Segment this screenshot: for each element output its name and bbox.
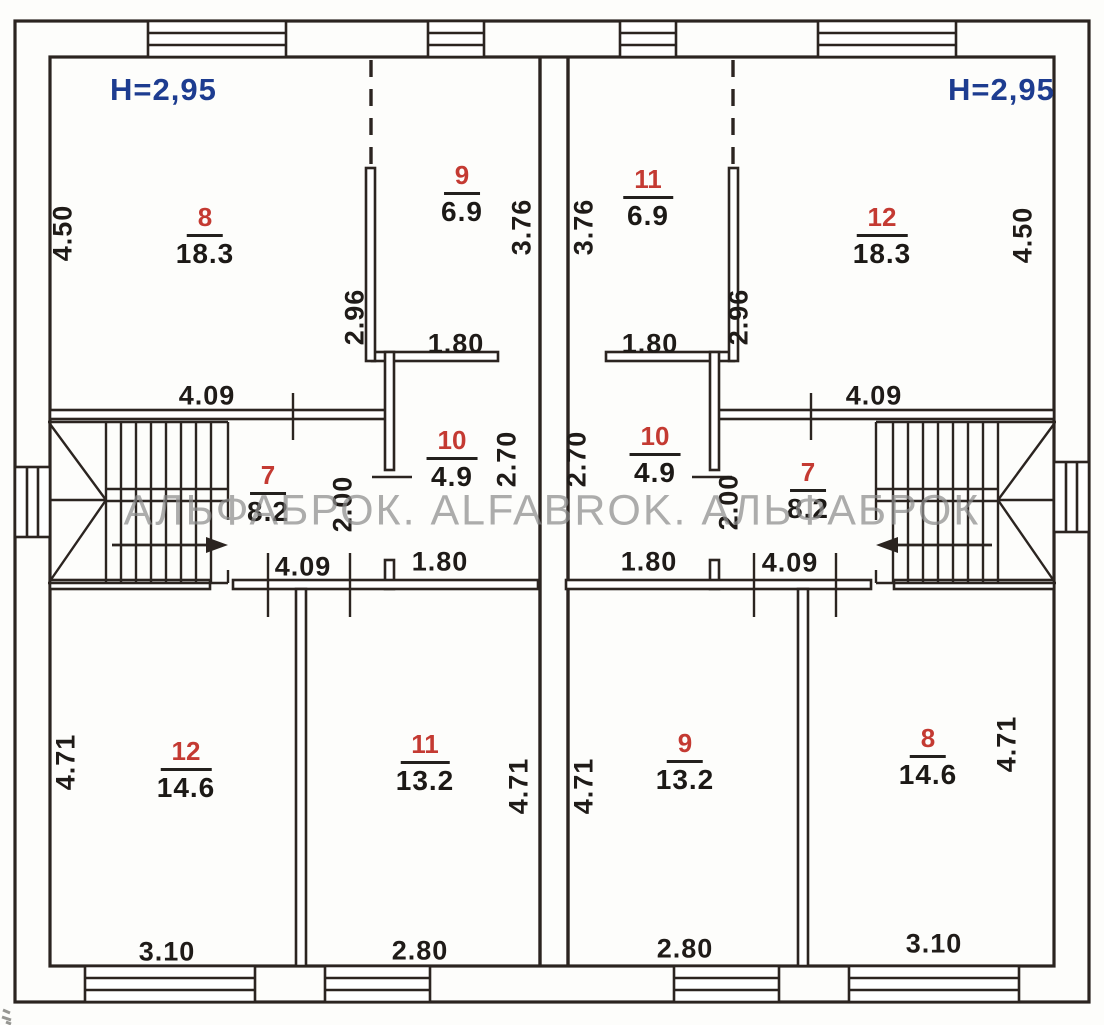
dimension-label: 2.70 (492, 431, 523, 488)
dimension-label: 3.76 (569, 199, 600, 256)
room-label-left-11: 11 13.2 (396, 731, 455, 795)
room-number: 11 (623, 166, 673, 199)
room-area: 13.2 (396, 767, 455, 795)
dimension-label: 3.10 (906, 929, 963, 960)
room-number: 9 (667, 730, 703, 763)
dimension-label: 4.71 (504, 758, 535, 815)
room-number: 12 (857, 204, 908, 237)
dimension-label: 4.50 (48, 205, 79, 262)
dimension-label: 1.80 (428, 329, 485, 360)
dimension-label: 1.80 (622, 329, 679, 360)
dimension-label: 2.96 (724, 289, 755, 346)
stair-direction-arrow-left (876, 537, 898, 553)
room-label-left-9: 9 6.9 (441, 162, 483, 226)
dimension-label: 2.70 (562, 431, 593, 488)
dimension-label: 3.10 (139, 937, 196, 968)
room-area: 18.3 (853, 240, 912, 268)
dimension-label: 4.09 (179, 381, 236, 412)
dimension-label: 2.80 (657, 934, 714, 965)
dimension-label: 4.09 (846, 381, 903, 412)
room-number: 8 (910, 725, 946, 758)
stair-direction-arrow-right (206, 537, 228, 553)
dimension-label: 4.71 (51, 734, 82, 791)
room-area: 14.6 (157, 774, 216, 802)
dimension-label: 4.71 (569, 758, 600, 815)
room-label-right-10: 10 4.9 (630, 423, 681, 487)
room-label-right-12: 12 18.3 (853, 204, 912, 268)
room-area: 6.9 (441, 198, 483, 226)
ceiling-height-note-right: H=2,95 (948, 72, 1055, 108)
agency-watermark: АЛЬФАБРОК. ALFABROK. АЛЬФАБРОК (124, 487, 981, 536)
dimension-label: 3.76 (507, 199, 538, 256)
room-area: 13.2 (656, 766, 715, 794)
dimension-label: 4.09 (275, 552, 332, 583)
room-number: 10 (630, 423, 681, 456)
dimension-label: 1.80 (621, 547, 678, 578)
room-number: 8 (187, 204, 223, 237)
room-area: 4.9 (630, 459, 681, 487)
room-label-left-8: 8 18.3 (176, 204, 235, 268)
dashed-partition-lines (371, 60, 733, 168)
room-label-right-11: 11 6.9 (623, 166, 673, 230)
room-number: 10 (427, 427, 478, 460)
dimension-label: 4.09 (762, 548, 819, 579)
dimension-label: 2.80 (392, 936, 449, 967)
room-area: 14.6 (899, 761, 958, 789)
dimension-label: 1.80 (412, 547, 469, 578)
room-area: 6.9 (623, 202, 673, 230)
room-number: 12 (161, 738, 212, 771)
room-label-right-8: 8 14.6 (899, 725, 958, 789)
ceiling-height-note-left: H=2,95 (110, 72, 217, 108)
dimension-label: 4.71 (992, 716, 1023, 773)
room-area: 18.3 (176, 240, 235, 268)
room-label-left-10: 10 4.9 (427, 427, 478, 491)
scan-artifact (2, 1010, 11, 1024)
dimension-label: 2.96 (340, 289, 371, 346)
room-label-right-9: 9 13.2 (656, 730, 715, 794)
room-number: 11 (400, 731, 450, 764)
room-label-left-12: 12 14.6 (157, 738, 216, 802)
floorplan-page: H=2,95 H=2,95 8 18.3 9 6.9 7 8.2 10 4.9 … (0, 0, 1104, 1025)
room-number: 9 (444, 162, 480, 195)
dimension-label: 4.50 (1008, 207, 1039, 264)
